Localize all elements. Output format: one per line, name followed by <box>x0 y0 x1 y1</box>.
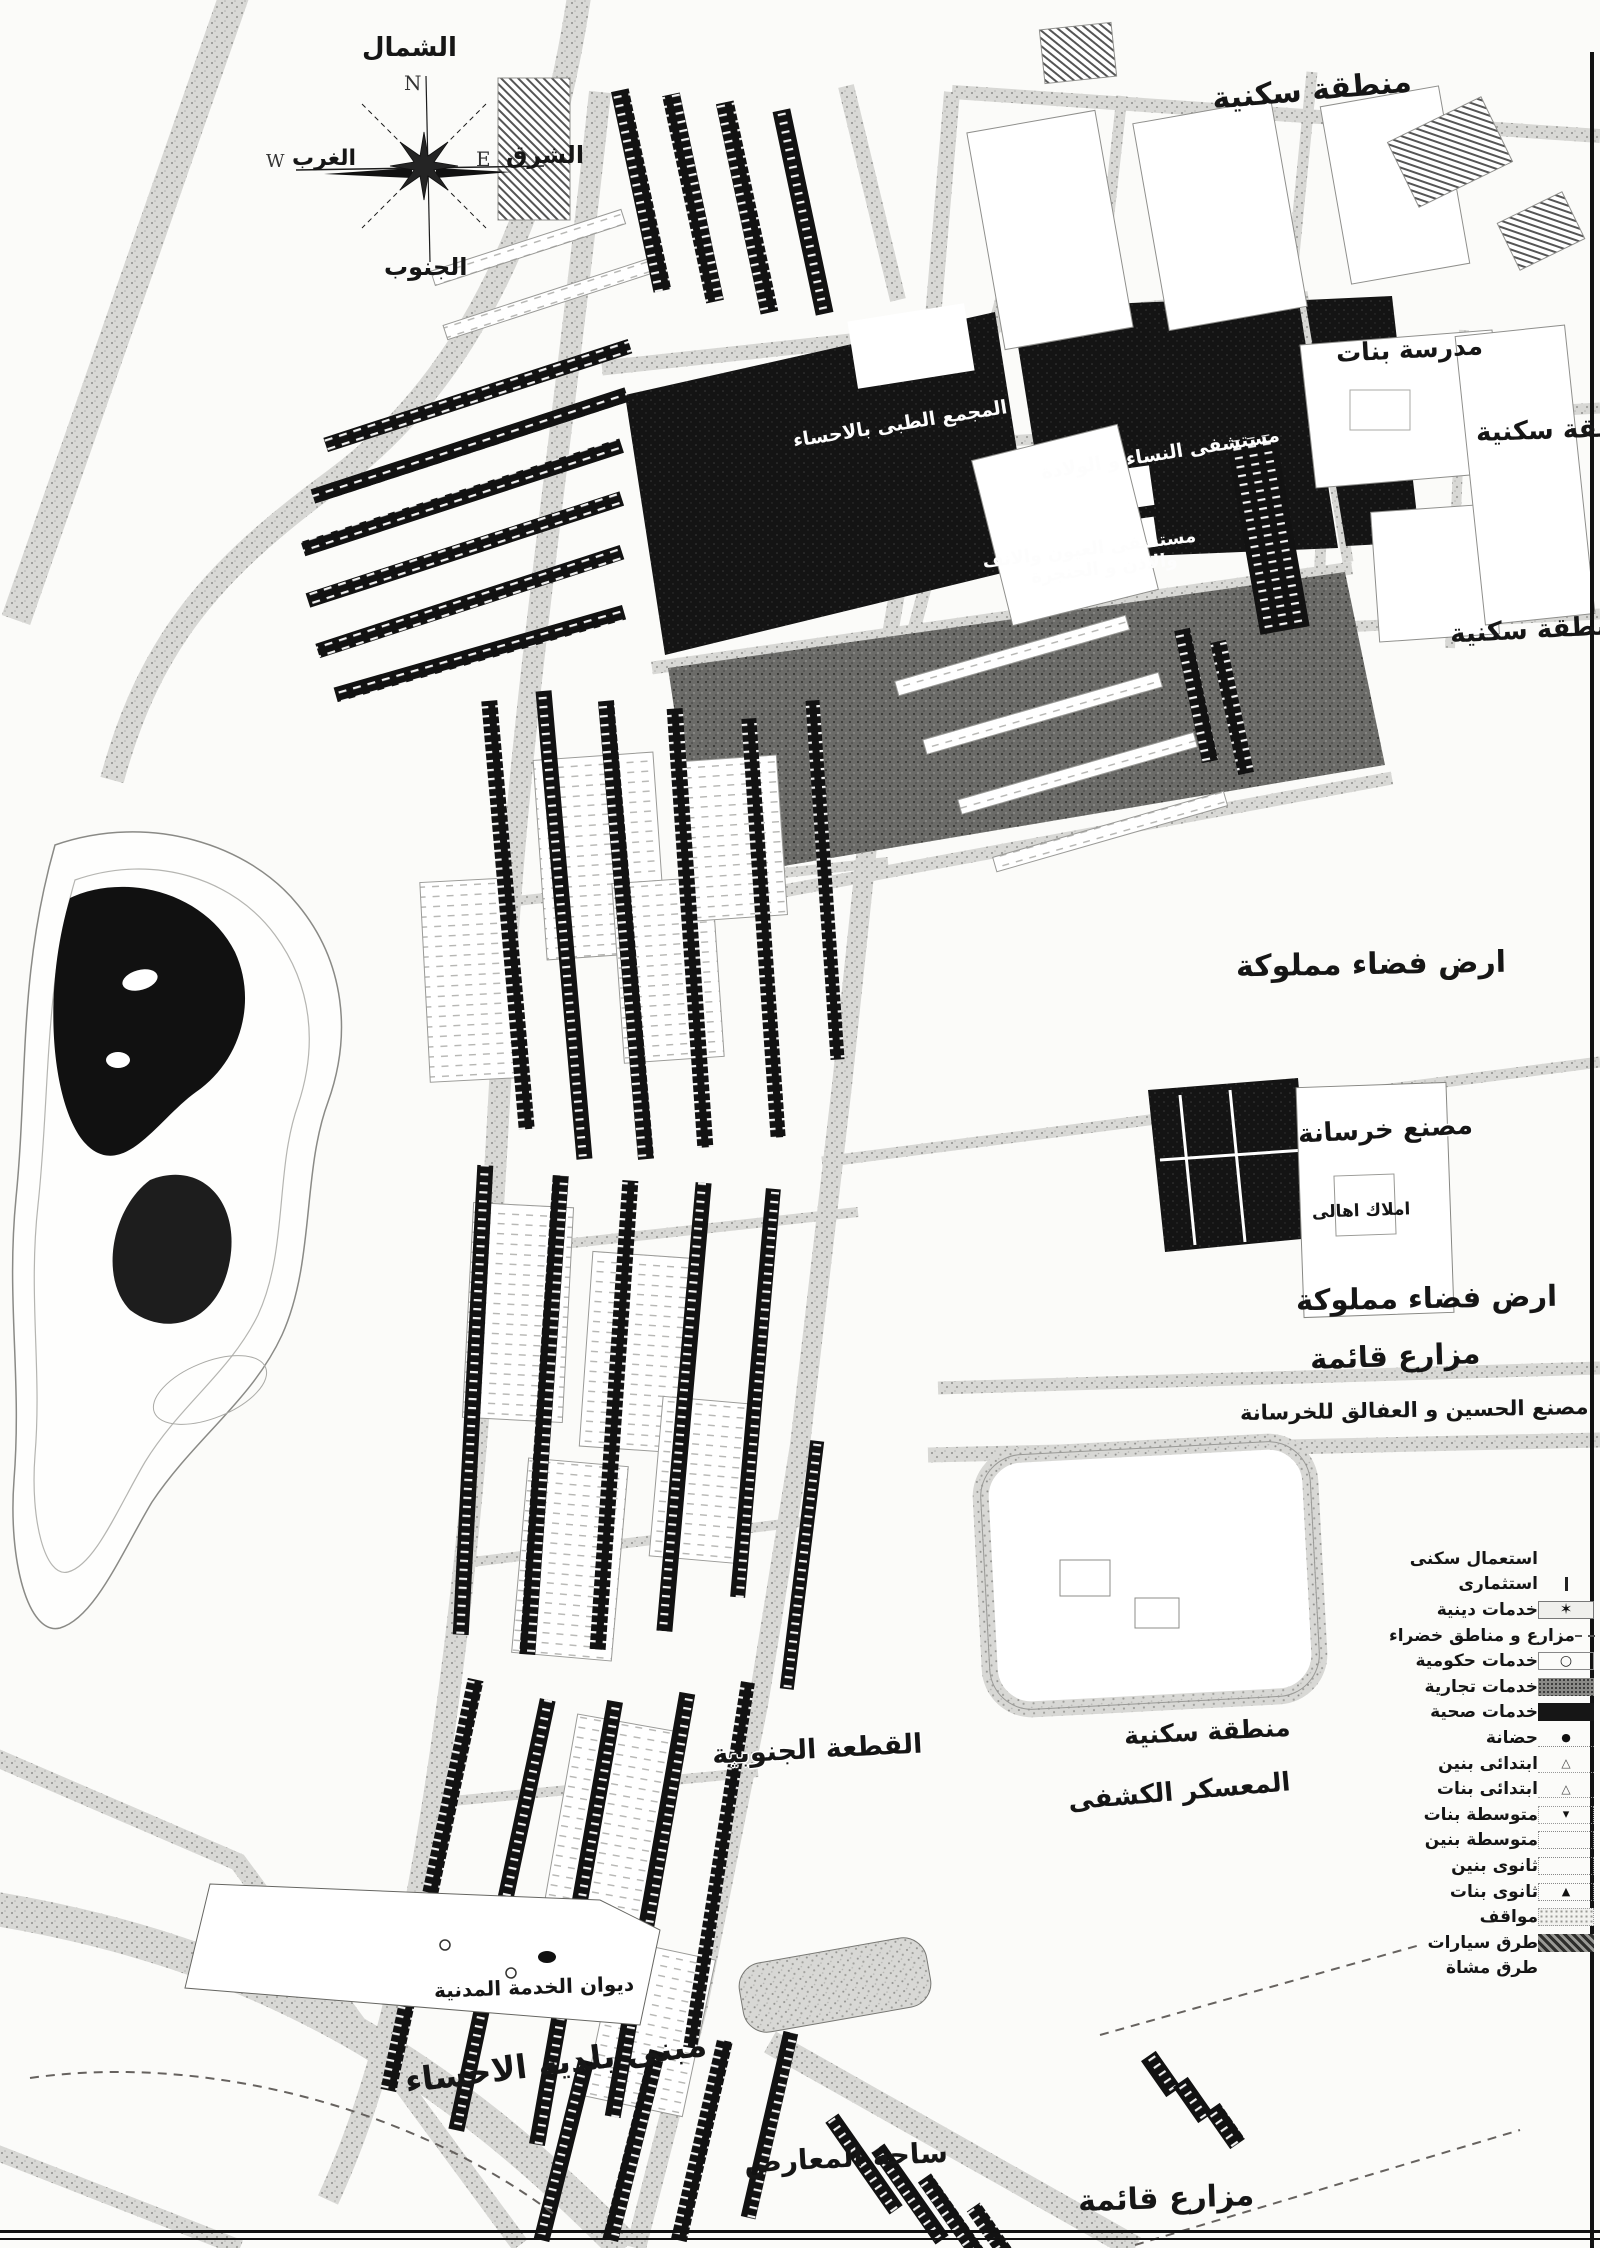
legend-item: مواقف <box>1382 1904 1594 1930</box>
scout-camp-parcel <box>979 1440 1322 1712</box>
compass-east-label: الشرق <box>506 142 584 170</box>
map-legend: استعمال سكنى استثمارى خدمات دينية مزارع … <box>1382 1546 1594 1981</box>
legend-item-label: استثمارى <box>1382 1574 1538 1594</box>
legend-religious-symbol-icon <box>1538 1601 1594 1619</box>
legend-item-label: طرق سيارات <box>1382 1933 1538 1953</box>
compass-east-letter: E <box>476 148 491 171</box>
legend-item-label: خدمات دينية <box>1382 1600 1538 1620</box>
legend-item: استعمال سكنى <box>1382 1546 1594 1572</box>
compass-north-label: الشمال <box>362 34 457 64</box>
legend-item: طرق سيارات <box>1382 1930 1594 1956</box>
legend-girls-middle-symbol-icon <box>1538 1806 1594 1824</box>
label-private-properties: املاك اهالى <box>1312 1200 1411 1223</box>
legend-item-label: ثانوى بنين <box>1382 1856 1538 1876</box>
site-plan-map: الشمال N W الغرب E الشرق الجنوب منطقة سك… <box>0 0 1600 2248</box>
label-existing-farms-lower: مزارع قائمة <box>1077 2179 1254 2220</box>
legend-commercial-symbol-icon <box>1538 1678 1594 1696</box>
label-residential-right-upper: منطقة سكنية <box>1476 413 1600 449</box>
legend-item: استثمارى <box>1382 1572 1594 1598</box>
label-existing-farms-upper: مزارع قائمة <box>1309 1337 1480 1376</box>
legend-boys-middle-symbol-icon <box>1538 1831 1594 1849</box>
legend-item: متوسطة بنات <box>1382 1802 1594 1828</box>
legend-item-label: حضانة <box>1382 1728 1538 1748</box>
legend-item: خدمات دينية <box>1382 1597 1594 1623</box>
legend-item-label: مواقف <box>1382 1907 1538 1927</box>
legend-farms-green-symbol-icon <box>1575 1627 1600 1645</box>
legend-girls-secondary-symbol-icon <box>1538 1883 1594 1901</box>
legend-item-label: ابتدائى بنين <box>1382 1754 1538 1774</box>
compass-west-letter: W <box>266 152 285 173</box>
legend-item: حضانة <box>1382 1725 1594 1751</box>
legend-item: ابتدائى بنات <box>1382 1776 1594 1802</box>
compass-south-label: الجنوب <box>384 254 468 282</box>
legend-item: ثانوى بنين <box>1382 1853 1594 1879</box>
legend-item: متوسطة بنين <box>1382 1828 1594 1854</box>
legend-item-label: ابتدائى بنات <box>1382 1779 1538 1799</box>
legend-item: خدمات صحية <box>1382 1700 1594 1726</box>
legend-item-label: خدمات تجارية <box>1382 1677 1538 1697</box>
legend-item-label: متوسطة بنات <box>1382 1805 1538 1825</box>
legend-item: ثانوى بنات <box>1382 1879 1594 1905</box>
legend-car-roads-symbol-icon <box>1538 1934 1594 1952</box>
legend-item-label: متوسطة بنين <box>1382 1830 1538 1850</box>
legend-item-label: خدمات حكومية <box>1382 1651 1538 1671</box>
legend-item: خدمات تجارية <box>1382 1674 1594 1700</box>
legend-item-label: خدمات صحية <box>1382 1702 1538 1722</box>
legend-item-label: استعمال سكنى <box>1382 1549 1538 1569</box>
lake-contours <box>13 832 342 1629</box>
legend-pedestrian-paths-symbol-icon <box>1538 1959 1594 1977</box>
legend-item: ابتدائى بنين <box>1382 1751 1594 1777</box>
legend-nursery-symbol-icon <box>1538 1729 1594 1747</box>
legend-boys-elementary-symbol-icon <box>1538 1755 1594 1773</box>
legend-item-label: ثانوى بنات <box>1382 1882 1538 1902</box>
legend-item-label: طرق مشاة <box>1382 1958 1538 1978</box>
legend-investment-symbol-icon <box>1538 1575 1594 1593</box>
legend-parking-symbol-icon <box>1538 1908 1594 1926</box>
legend-residential-symbol-icon <box>1538 1550 1594 1568</box>
legend-item: طرق مشاة <box>1382 1956 1594 1982</box>
legend-girls-elementary-symbol-icon <box>1538 1780 1594 1798</box>
legend-government-symbol-icon <box>1538 1652 1594 1670</box>
label-owned-vacant-land-lower: ارض فضاء مملوكة <box>1296 1280 1558 1318</box>
legend-boys-secondary-symbol-icon <box>1538 1857 1594 1875</box>
compass-north-letter: N <box>404 72 422 95</box>
legend-item: مزارع و مناطق خضراء <box>1382 1623 1594 1649</box>
legend-item-label: مزارع و مناطق خضراء <box>1382 1626 1575 1646</box>
label-owned-vacant-land-upper: ارض فضاء مملوكة <box>1236 946 1507 985</box>
compass-west-label: الغرب <box>292 146 356 171</box>
legend-item: خدمات حكومية <box>1382 1648 1594 1674</box>
legend-health-symbol-icon <box>1538 1703 1594 1721</box>
